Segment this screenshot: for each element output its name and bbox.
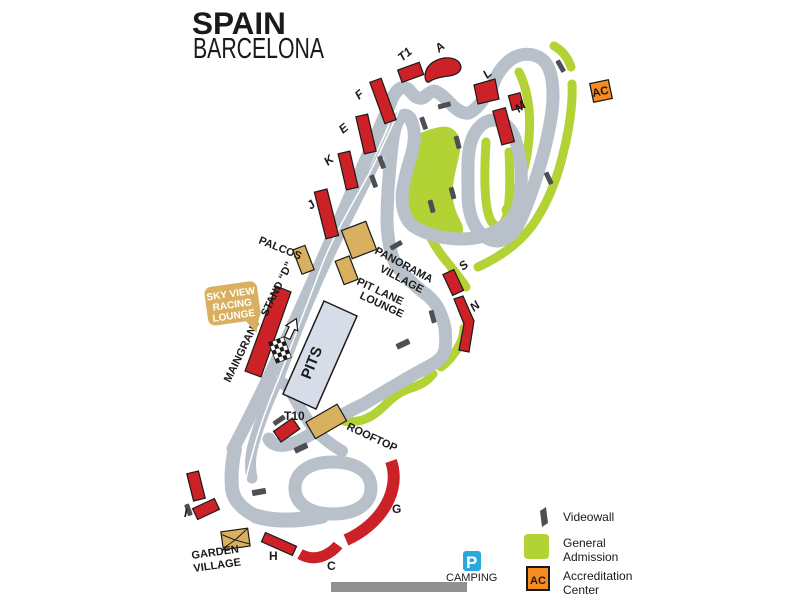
svg-text:G: G [392,502,401,516]
svg-text:P: P [466,553,477,572]
svg-text:Center: Center [563,583,599,597]
svg-text:Admission: Admission [563,550,618,564]
svg-text:General: General [563,536,606,550]
svg-text:Accreditation: Accreditation [563,569,632,583]
svg-text:BARCELONA: BARCELONA [193,33,324,65]
svg-text:AC: AC [530,575,546,587]
svg-text:Videowall: Videowall [563,510,614,524]
svg-text:C: C [327,559,336,573]
svg-text:T10: T10 [284,409,305,423]
svg-text:H: H [269,549,278,563]
